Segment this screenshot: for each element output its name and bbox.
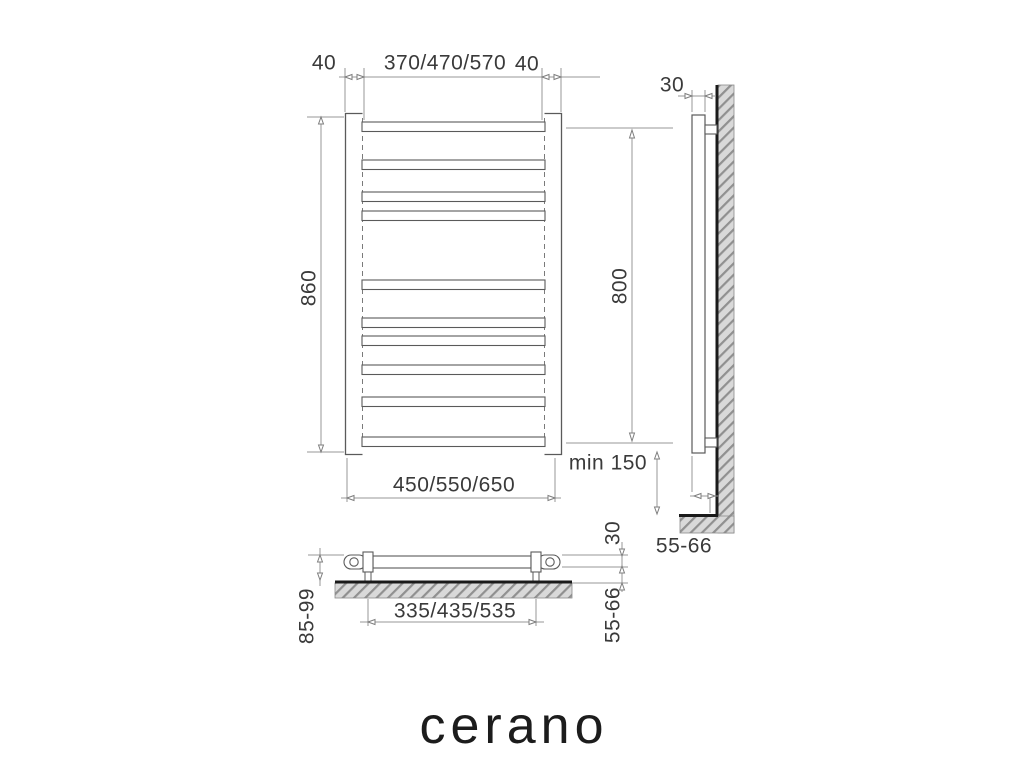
dim-label-overall-depth: 85-99: [297, 588, 318, 644]
dim-label-plan-tube-depth: 30: [603, 521, 624, 545]
plan-wall: [335, 583, 572, 598]
side-floor: [680, 516, 734, 533]
diagram-linework: [0, 0, 1024, 768]
brand-logo: cerano: [420, 700, 609, 752]
bottom-bracket: [705, 438, 717, 447]
front-view: [345, 113, 562, 455]
dim-label-right-offset: 40: [515, 54, 539, 75]
dim-label-plan-wall-gap: 55-66: [603, 587, 624, 643]
top-bracket: [705, 125, 717, 134]
right-screw-hole: [546, 558, 554, 566]
side-tube: [692, 115, 705, 453]
dim-label-overall-width: 450/550/650: [393, 475, 515, 496]
dim-label-side-wall-distance: 55-66: [656, 536, 712, 557]
left-screw-hole: [350, 558, 358, 566]
dim-label-rail-width: 370/470/570: [384, 53, 506, 74]
side-wall: [718, 85, 734, 533]
radiator-dimension-drawing: 40 370/470/570 40 860 800 30 min 150 450…: [0, 0, 1024, 768]
dim-label-side-tube-depth: 30: [660, 75, 684, 96]
side-view: [679, 85, 734, 533]
dim-label-left-offset: 40: [312, 53, 336, 74]
towel-bars: [362, 122, 545, 447]
dim-label-height: 860: [299, 270, 320, 307]
dim-label-floor-clearance: min 150: [569, 453, 647, 474]
top-view: [335, 552, 572, 598]
dim-label-bracket-spacing: 335/435/535: [394, 601, 516, 622]
dim-label-bracket-height: 800: [610, 268, 631, 305]
